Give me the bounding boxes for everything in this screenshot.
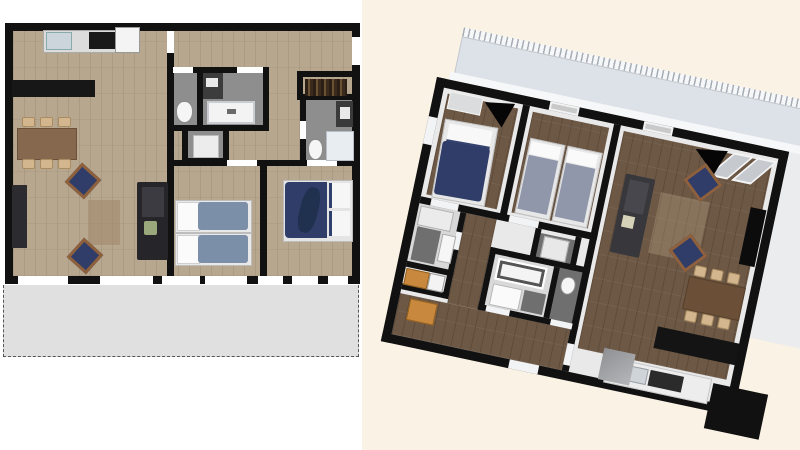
door-bedroom1: [227, 160, 257, 166]
clothes-rail: [305, 79, 347, 96]
dining-table: [17, 128, 77, 160]
fridge: [598, 348, 636, 386]
fridge: [115, 27, 140, 53]
dining-chair: [40, 159, 53, 169]
ensuite-sink-bowl: [340, 107, 350, 119]
dining-chair: [58, 159, 71, 169]
wall-bedroom-sep: [260, 160, 267, 276]
screenshot-root: { "scene": { "type": "apartment-floor-pl…: [0, 0, 800, 450]
toilet: [176, 101, 193, 123]
wall-wardrobe-top: [297, 71, 360, 77]
dining-chair: [22, 117, 35, 127]
plan-2d[interactable]: [5, 23, 360, 284]
bed-pillow: [177, 235, 200, 264]
dining-chair: [700, 313, 714, 326]
window: [162, 276, 200, 284]
dining-chair: [22, 159, 35, 169]
window: [18, 276, 68, 284]
shower: [193, 135, 219, 158]
kitchen-island: [12, 80, 95, 97]
door-bathroom: [237, 67, 263, 73]
window: [258, 276, 283, 284]
rug: [88, 200, 120, 245]
window: [100, 276, 153, 284]
vanity-sink: [206, 78, 218, 87]
bath-tile: [520, 290, 546, 315]
bed-blanket: [198, 202, 248, 230]
door-hall: [167, 31, 174, 53]
door-wc: [173, 67, 193, 73]
bed-blanket: [198, 235, 248, 263]
bed-pillow: [329, 211, 350, 236]
window: [292, 276, 318, 284]
dining-chair: [710, 268, 724, 281]
dining-chair: [693, 265, 707, 278]
stove: [89, 32, 115, 49]
window: [205, 276, 247, 284]
dining-chair: [717, 317, 731, 330]
dining-chair: [40, 117, 53, 127]
dining-chair: [727, 272, 741, 285]
dining-chair: [684, 310, 698, 323]
sofa-cushion: [142, 187, 164, 217]
ensuite-shower: [326, 131, 354, 161]
window-right: [352, 37, 360, 65]
window: [328, 276, 348, 284]
balcony: [3, 285, 359, 357]
sofa-pillow: [621, 215, 635, 229]
bed-duvet: [434, 140, 491, 202]
tv-sideboard: [12, 185, 27, 248]
kitchen-sink: [46, 32, 72, 50]
toilet: [308, 139, 323, 160]
wall-bath-right: [263, 67, 269, 131]
bathtub-faucet: [227, 109, 236, 114]
door-ensuite: [300, 121, 306, 139]
dining-chair: [58, 117, 71, 127]
bed-pillow: [177, 202, 200, 231]
sofa-pillow: [144, 221, 157, 235]
bed-pillow: [329, 183, 350, 208]
